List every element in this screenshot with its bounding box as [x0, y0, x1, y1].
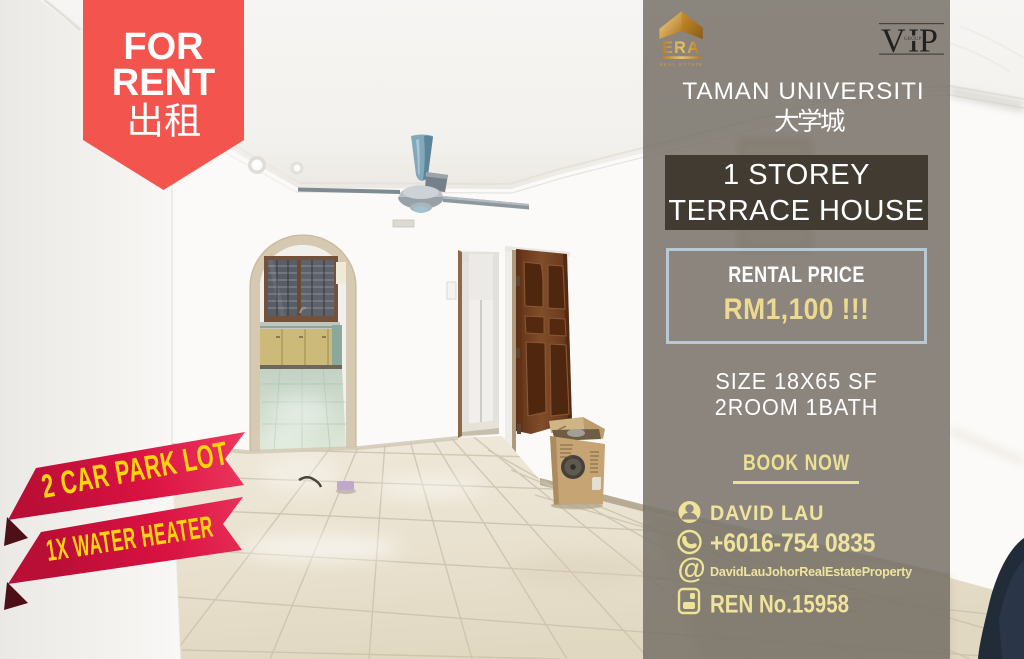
svg-text:RENT: RENT — [112, 62, 215, 104]
